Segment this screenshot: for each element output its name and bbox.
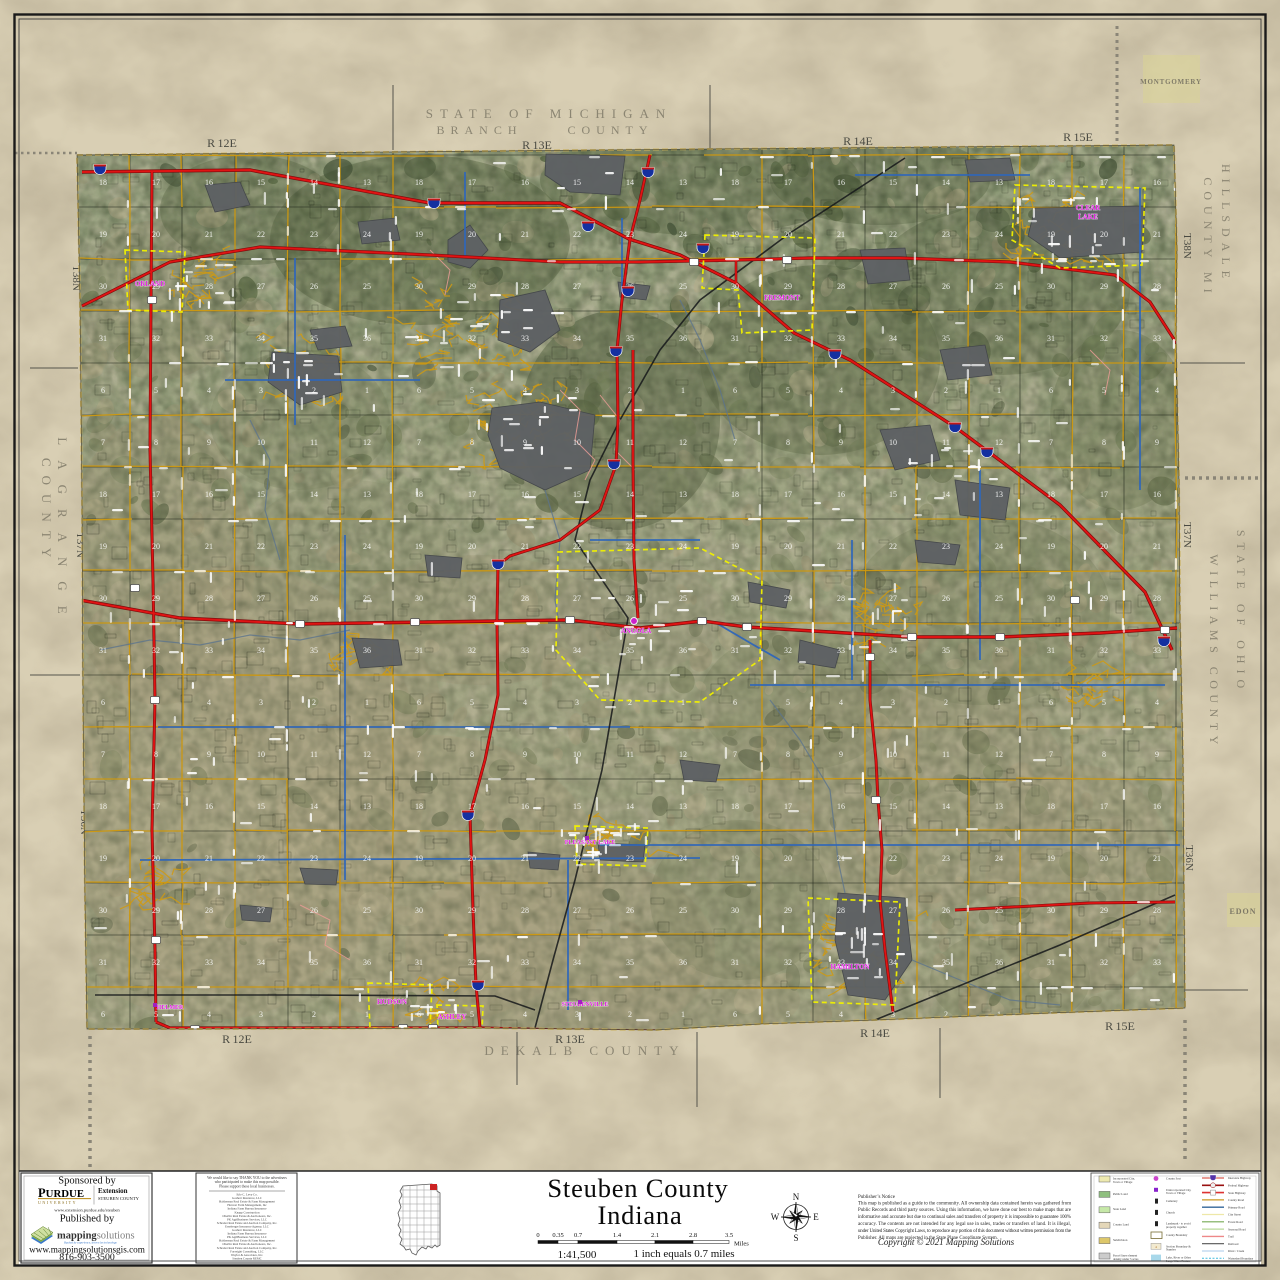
svg-text:2: 2 (628, 698, 632, 707)
svg-text:15: 15 (257, 178, 265, 187)
svg-text:25: 25 (679, 282, 687, 291)
svg-text:26: 26 (626, 906, 634, 915)
svg-text:12: 12 (363, 438, 371, 447)
svg-text:Interstate Highway: Interstate Highway (1228, 1176, 1251, 1180)
svg-text:23: 23 (626, 542, 634, 551)
svg-text:1.4: 1.4 (613, 1232, 622, 1239)
svg-text:3: 3 (575, 1010, 579, 1019)
svg-text:26: 26 (310, 282, 318, 291)
svg-text:3: 3 (575, 698, 579, 707)
svg-text:31: 31 (99, 958, 107, 967)
svg-text:31: 31 (731, 334, 739, 343)
svg-text:Town or Village: Town or Village (1113, 1180, 1133, 1184)
svg-text:29: 29 (784, 282, 792, 291)
svg-text:6: 6 (101, 386, 105, 395)
svg-text:31: 31 (99, 334, 107, 343)
svg-text:25: 25 (363, 282, 371, 291)
svg-text:26: 26 (942, 594, 950, 603)
svg-text:property together: property together (1166, 1225, 1187, 1229)
svg-text:36: 36 (363, 646, 371, 655)
svg-text:20: 20 (1100, 230, 1108, 239)
svg-text:9: 9 (207, 750, 211, 759)
svg-text:30: 30 (99, 906, 107, 915)
svg-text:6: 6 (417, 386, 421, 395)
svg-text:12: 12 (363, 750, 371, 759)
svg-text:8: 8 (470, 750, 474, 759)
svg-text:1: 1 (365, 1010, 369, 1019)
svg-text:29: 29 (784, 906, 792, 915)
svg-text:WILLIAMS COUNTY: WILLIAMS COUNTY (1207, 554, 1221, 750)
svg-text:33: 33 (205, 646, 213, 655)
svg-text:13: 13 (679, 802, 687, 811)
svg-text:4: 4 (839, 698, 843, 707)
svg-text:27: 27 (889, 594, 897, 603)
svg-text:31: 31 (1047, 958, 1055, 967)
svg-text:8: 8 (786, 438, 790, 447)
svg-text:31: 31 (415, 958, 423, 967)
svg-text:21: 21 (837, 854, 845, 863)
svg-text:16: 16 (1153, 178, 1161, 187)
svg-text:0.7: 0.7 (574, 1232, 583, 1239)
svg-text:COUNTY MI: COUNTY MI (1201, 177, 1215, 298)
svg-text:22: 22 (257, 542, 265, 551)
svg-text:Church: Church (1166, 1210, 1175, 1214)
svg-text:PURDUE: PURDUE (38, 1186, 84, 1200)
svg-text:6: 6 (733, 1010, 737, 1019)
svg-text:6: 6 (101, 698, 105, 707)
svg-text:24: 24 (679, 854, 687, 863)
svg-text:33: 33 (521, 958, 529, 967)
svg-text:34: 34 (889, 334, 897, 343)
svg-text:28: 28 (521, 906, 529, 915)
svg-text:8: 8 (154, 750, 158, 759)
svg-text:32: 32 (784, 958, 792, 967)
svg-text:18: 18 (1047, 490, 1055, 499)
svg-text:19: 19 (731, 854, 739, 863)
svg-text:13: 13 (363, 802, 371, 811)
svg-text:21: 21 (205, 854, 213, 863)
svg-text:N: N (793, 1192, 800, 1202)
svg-text:29: 29 (152, 594, 160, 603)
svg-text:20: 20 (1100, 542, 1108, 551)
svg-text:21: 21 (1153, 854, 1161, 863)
svg-text:4: 4 (1155, 1245, 1157, 1249)
svg-text:33: 33 (1153, 958, 1161, 967)
svg-text:4: 4 (839, 1010, 843, 1019)
svg-text:21: 21 (1153, 230, 1161, 239)
svg-text:0.35: 0.35 (552, 1232, 563, 1239)
svg-text:32: 32 (1100, 334, 1108, 343)
svg-text:25: 25 (679, 594, 687, 603)
svg-text:25: 25 (679, 906, 687, 915)
svg-text:15: 15 (573, 802, 581, 811)
svg-text:3.5: 3.5 (725, 1232, 733, 1239)
svg-text:30: 30 (99, 594, 107, 603)
svg-text:6: 6 (733, 698, 737, 707)
svg-text:9: 9 (523, 750, 527, 759)
svg-text:1: 1 (997, 698, 1001, 707)
svg-text:34: 34 (889, 646, 897, 655)
svg-text:HAMILTON: HAMILTON (831, 963, 870, 971)
svg-text:8: 8 (470, 438, 474, 447)
svg-text:7: 7 (733, 438, 737, 447)
svg-text:20: 20 (784, 230, 792, 239)
svg-text:2: 2 (628, 1010, 632, 1019)
svg-text:density under 5 acres: density under 5 acres (1113, 1257, 1139, 1261)
svg-text:22: 22 (257, 230, 265, 239)
svg-text:0: 0 (536, 1232, 539, 1239)
svg-text:7: 7 (417, 438, 421, 447)
svg-text:5: 5 (786, 386, 790, 395)
svg-text:13: 13 (995, 490, 1003, 499)
svg-text:2.8: 2.8 (689, 1232, 697, 1239)
svg-text:13: 13 (995, 178, 1003, 187)
svg-text:County Seat: County Seat (1166, 1177, 1181, 1181)
svg-text:Trail: Trail (1228, 1235, 1234, 1239)
svg-text:14: 14 (942, 802, 950, 811)
svg-text:STATE OF OHIO: STATE OF OHIO (1234, 530, 1248, 694)
svg-text:35: 35 (310, 334, 318, 343)
svg-text:32: 32 (1100, 646, 1108, 655)
svg-text:R 12E: R 12E (207, 136, 237, 150)
svg-text:1:41,500: 1:41,500 (558, 1249, 597, 1261)
svg-text:16: 16 (521, 178, 529, 187)
svg-text:2: 2 (944, 386, 948, 395)
svg-text:16: 16 (205, 490, 213, 499)
svg-text:ASHLEY: ASHLEY (438, 1013, 467, 1021)
svg-text:R 12E: R 12E (222, 1032, 252, 1046)
svg-text:22: 22 (573, 542, 581, 551)
svg-text:15: 15 (889, 802, 897, 811)
svg-text:32: 32 (152, 958, 160, 967)
svg-text:35: 35 (626, 646, 634, 655)
svg-text:9: 9 (1155, 750, 1159, 759)
svg-text:36: 36 (363, 334, 371, 343)
svg-text:R 15E: R 15E (1105, 1019, 1135, 1033)
svg-text:16: 16 (521, 490, 529, 499)
svg-text:STEUBEN COUNTY: STEUBEN COUNTY (98, 1196, 140, 1201)
svg-text:Number: Number (1166, 1248, 1176, 1252)
svg-text:14: 14 (626, 490, 634, 499)
svg-text:23: 23 (310, 542, 318, 551)
svg-text:2: 2 (312, 386, 316, 395)
svg-text:29: 29 (468, 282, 476, 291)
svg-text:22: 22 (889, 230, 897, 239)
svg-text:15: 15 (257, 802, 265, 811)
svg-text:10: 10 (889, 750, 897, 759)
svg-text:24: 24 (679, 542, 687, 551)
svg-text:17: 17 (1100, 802, 1108, 811)
svg-text:28: 28 (837, 906, 845, 915)
svg-text:11: 11 (626, 438, 634, 447)
svg-text:HUDSON: HUDSON (377, 998, 407, 1006)
svg-text:22: 22 (257, 854, 265, 863)
svg-text:32: 32 (784, 646, 792, 655)
svg-text:28: 28 (1153, 594, 1161, 603)
svg-text:9: 9 (523, 438, 527, 447)
svg-text:23: 23 (942, 230, 950, 239)
svg-text:32: 32 (468, 334, 476, 343)
svg-text:19: 19 (731, 542, 739, 551)
svg-text:31: 31 (1047, 334, 1055, 343)
svg-text:6: 6 (1049, 698, 1053, 707)
svg-text:3: 3 (575, 386, 579, 395)
svg-text:5: 5 (786, 698, 790, 707)
svg-text:35: 35 (310, 958, 318, 967)
svg-text:5: 5 (470, 1010, 474, 1019)
svg-text:13: 13 (363, 490, 371, 499)
svg-text:Steuben County: Steuben County (547, 1173, 728, 1203)
svg-text:W: W (771, 1212, 780, 1222)
svg-text:10: 10 (889, 438, 897, 447)
svg-text:30: 30 (415, 594, 423, 603)
svg-text:LAGRANGE: LAGRANGE (55, 437, 70, 629)
svg-text:10: 10 (257, 438, 265, 447)
svg-text:Publisher’s Notice: Publisher’s Notice (858, 1195, 896, 1200)
svg-text:14: 14 (310, 490, 318, 499)
svg-text:36: 36 (363, 958, 371, 967)
svg-text:31: 31 (99, 646, 107, 655)
svg-text:34: 34 (889, 958, 897, 967)
svg-text:13: 13 (679, 178, 687, 187)
svg-text:27: 27 (257, 282, 265, 291)
svg-text:Steuben County REMC: Steuben County REMC (232, 1256, 261, 1260)
svg-text:18: 18 (1047, 802, 1055, 811)
svg-text:R 14E: R 14E (843, 134, 873, 148)
svg-text:2: 2 (312, 698, 316, 707)
svg-text:16: 16 (837, 490, 845, 499)
svg-text:7: 7 (417, 750, 421, 759)
svg-text:12: 12 (995, 438, 1003, 447)
svg-text:31: 31 (731, 646, 739, 655)
svg-text:34: 34 (257, 958, 265, 967)
svg-text:6: 6 (101, 1010, 105, 1019)
svg-text:31: 31 (415, 646, 423, 655)
svg-text:under United States Copyright: under United States Copyright Laws, to r… (858, 1229, 1071, 1234)
svg-text:11: 11 (942, 438, 950, 447)
svg-text:30: 30 (1047, 906, 1055, 915)
svg-text:4: 4 (1155, 698, 1159, 707)
svg-text:28: 28 (1153, 906, 1161, 915)
svg-text:21: 21 (1153, 542, 1161, 551)
svg-text:26: 26 (942, 906, 950, 915)
svg-text:1 inch equals 0.7 miles: 1 inch equals 0.7 miles (633, 1248, 734, 1260)
svg-text:LAKE: LAKE (1078, 213, 1098, 221)
svg-text:21: 21 (837, 542, 845, 551)
svg-text:17: 17 (1100, 490, 1108, 499)
svg-text:DEKALB COUNTY: DEKALB COUNTY (484, 1043, 685, 1058)
svg-text:7: 7 (733, 750, 737, 759)
svg-text:30: 30 (99, 282, 107, 291)
svg-text:This map is published as a gui: This map is published as a guide to the … (858, 1201, 1071, 1206)
svg-text:17: 17 (152, 802, 160, 811)
svg-text:19: 19 (415, 854, 423, 863)
svg-text:5: 5 (1102, 698, 1106, 707)
svg-text:8: 8 (154, 438, 158, 447)
svg-text:Town or Village: Town or Village (1166, 1191, 1186, 1195)
svg-text:19: 19 (415, 230, 423, 239)
svg-text:5: 5 (1102, 386, 1106, 395)
svg-text:7: 7 (101, 750, 105, 759)
svg-text:2: 2 (944, 698, 948, 707)
svg-text:36: 36 (995, 958, 1003, 967)
svg-text:35: 35 (626, 958, 634, 967)
svg-text:7: 7 (101, 438, 105, 447)
svg-text:30: 30 (1047, 594, 1055, 603)
svg-text:20: 20 (784, 854, 792, 863)
svg-text:33: 33 (521, 334, 529, 343)
svg-text:3: 3 (259, 698, 263, 707)
svg-text:24: 24 (995, 542, 1003, 551)
svg-text:6: 6 (733, 386, 737, 395)
svg-text:14: 14 (310, 178, 318, 187)
svg-text:19: 19 (415, 542, 423, 551)
svg-text:30: 30 (731, 594, 739, 603)
svg-text:17: 17 (468, 490, 476, 499)
svg-text:Forest Road: Forest Road (1228, 1220, 1243, 1224)
svg-text:3: 3 (891, 1010, 895, 1019)
svg-text:MONTGOMERY: MONTGOMERY (1140, 78, 1202, 86)
svg-text:15: 15 (573, 490, 581, 499)
svg-text:S: S (793, 1233, 798, 1243)
svg-text:21: 21 (521, 854, 529, 863)
svg-text:20: 20 (1100, 854, 1108, 863)
svg-text:4: 4 (1155, 386, 1159, 395)
svg-text:35: 35 (626, 334, 634, 343)
svg-text:5: 5 (470, 386, 474, 395)
svg-text:36: 36 (679, 646, 687, 655)
svg-text:27: 27 (573, 906, 581, 915)
svg-text:32: 32 (468, 958, 476, 967)
svg-text:32: 32 (468, 646, 476, 655)
svg-text:15: 15 (573, 178, 581, 187)
svg-text:27: 27 (257, 594, 265, 603)
svg-text:Published by: Published by (60, 1214, 115, 1225)
svg-text:15: 15 (889, 178, 897, 187)
svg-text:3: 3 (891, 386, 895, 395)
svg-text:8: 8 (786, 750, 790, 759)
svg-text:33: 33 (205, 958, 213, 967)
svg-text:UNIVERSITY: UNIVERSITY (38, 1200, 77, 1205)
svg-text:17: 17 (152, 490, 160, 499)
svg-text:19: 19 (99, 854, 107, 863)
svg-text:6: 6 (1049, 386, 1053, 395)
svg-text:17: 17 (152, 178, 160, 187)
svg-text:28: 28 (205, 906, 213, 915)
svg-text:36: 36 (995, 646, 1003, 655)
svg-text:25: 25 (995, 906, 1003, 915)
svg-text:Extension: Extension (98, 1187, 128, 1195)
svg-text:12: 12 (679, 750, 687, 759)
svg-text:5: 5 (154, 386, 158, 395)
svg-text:21: 21 (205, 230, 213, 239)
svg-text:County Road: County Road (1228, 1198, 1244, 1202)
svg-text:19: 19 (1047, 854, 1055, 863)
svg-text:10: 10 (573, 438, 581, 447)
svg-text:20: 20 (468, 230, 476, 239)
svg-text:BRANCH COUNTY: BRANCH COUNTY (436, 123, 653, 137)
svg-text:18: 18 (99, 802, 107, 811)
svg-text:23: 23 (942, 854, 950, 863)
svg-text:HILLSDALE: HILLSDALE (1219, 164, 1233, 284)
svg-text:29: 29 (1100, 906, 1108, 915)
svg-text:31: 31 (731, 958, 739, 967)
svg-text:15: 15 (257, 490, 265, 499)
svg-text:R 14E: R 14E (860, 1026, 890, 1040)
svg-text:1: 1 (997, 386, 1001, 395)
svg-text:16: 16 (205, 178, 213, 187)
svg-text:31: 31 (415, 334, 423, 343)
svg-text:22: 22 (889, 542, 897, 551)
svg-text:17: 17 (1100, 178, 1108, 187)
svg-text:Copyright © 2021 Mapping Solut: Copyright © 2021 Mapping Solutions (878, 1237, 1015, 1247)
svg-text:33: 33 (1153, 646, 1161, 655)
svg-text:13: 13 (679, 490, 687, 499)
svg-text:14: 14 (626, 178, 634, 187)
svg-text:22: 22 (889, 854, 897, 863)
svg-text:12: 12 (995, 750, 1003, 759)
svg-text:11: 11 (942, 750, 950, 759)
svg-text:16: 16 (205, 802, 213, 811)
svg-text:ANGOLA: ANGOLA (621, 627, 652, 635)
svg-text:4: 4 (207, 698, 211, 707)
svg-text:20: 20 (152, 230, 160, 239)
svg-text:11: 11 (310, 750, 318, 759)
svg-text:8: 8 (1102, 750, 1106, 759)
svg-text:28: 28 (837, 282, 845, 291)
svg-text:17: 17 (784, 802, 792, 811)
svg-text:7: 7 (1049, 438, 1053, 447)
svg-text:18: 18 (415, 178, 423, 187)
svg-text:Seasonal Road: Seasonal Road (1228, 1227, 1246, 1231)
svg-text:19: 19 (731, 230, 739, 239)
svg-text:29: 29 (152, 906, 160, 915)
svg-text:16: 16 (837, 802, 845, 811)
svg-text:County Land: County Land (1113, 1223, 1129, 1227)
svg-text:State Land: State Land (1113, 1207, 1126, 1211)
svg-text:20: 20 (152, 854, 160, 863)
svg-text:33: 33 (1153, 334, 1161, 343)
svg-text:T37N: T37N (1181, 522, 1193, 548)
svg-text:3: 3 (259, 1010, 263, 1019)
svg-text:24: 24 (363, 542, 371, 551)
svg-text:18: 18 (1047, 178, 1055, 187)
svg-text:28: 28 (521, 282, 529, 291)
svg-text:34: 34 (257, 334, 265, 343)
svg-text:18: 18 (99, 178, 107, 187)
svg-text:34: 34 (573, 958, 581, 967)
svg-text:26: 26 (310, 594, 318, 603)
svg-text:35: 35 (942, 334, 950, 343)
svg-text:27: 27 (573, 594, 581, 603)
svg-text:36: 36 (679, 334, 687, 343)
svg-text:Railroad: Railroad (1228, 1242, 1239, 1246)
svg-text:COUNTY: COUNTY (39, 458, 54, 566)
svg-text:18: 18 (731, 490, 739, 499)
svg-text:30: 30 (415, 282, 423, 291)
svg-text:35: 35 (310, 646, 318, 655)
svg-text:10: 10 (573, 750, 581, 759)
svg-text:5: 5 (786, 1010, 790, 1019)
svg-text:R 13E: R 13E (555, 1032, 585, 1046)
svg-text:Watershed Boundary: Watershed Boundary (1228, 1257, 1254, 1261)
svg-text:23: 23 (626, 230, 634, 239)
svg-text:www.extension.purdue.edu/steub: www.extension.purdue.edu/steuben (54, 1208, 120, 1213)
svg-text:27: 27 (257, 906, 265, 915)
svg-text:17: 17 (468, 802, 476, 811)
svg-text:34: 34 (573, 646, 581, 655)
svg-text:14: 14 (626, 802, 634, 811)
